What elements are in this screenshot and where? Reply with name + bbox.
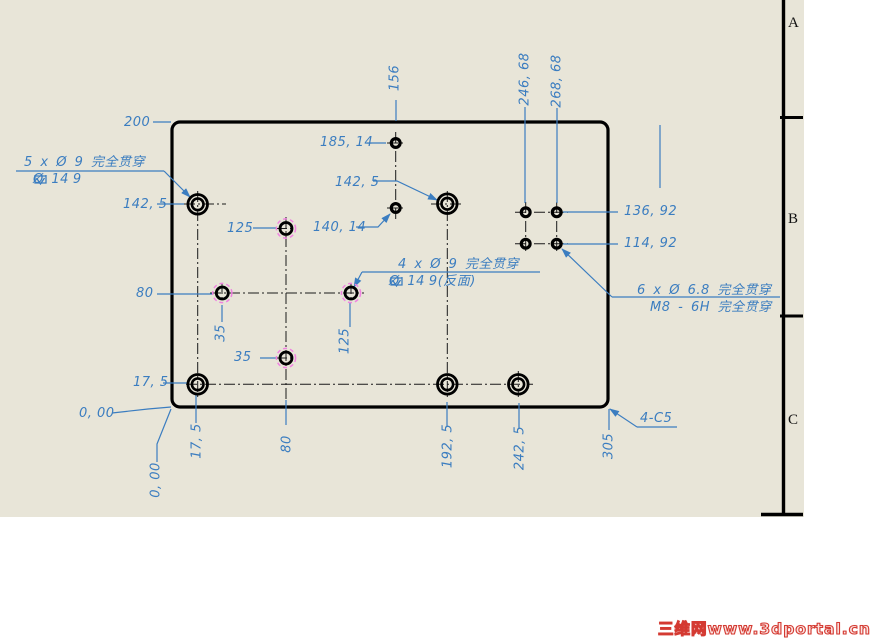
drawing-svg xyxy=(0,0,883,642)
sheet-background xyxy=(0,0,804,517)
cad-drawing-canvas: 三维网www.3dportal.cn 200142, 5125185, 1414… xyxy=(0,0,883,642)
